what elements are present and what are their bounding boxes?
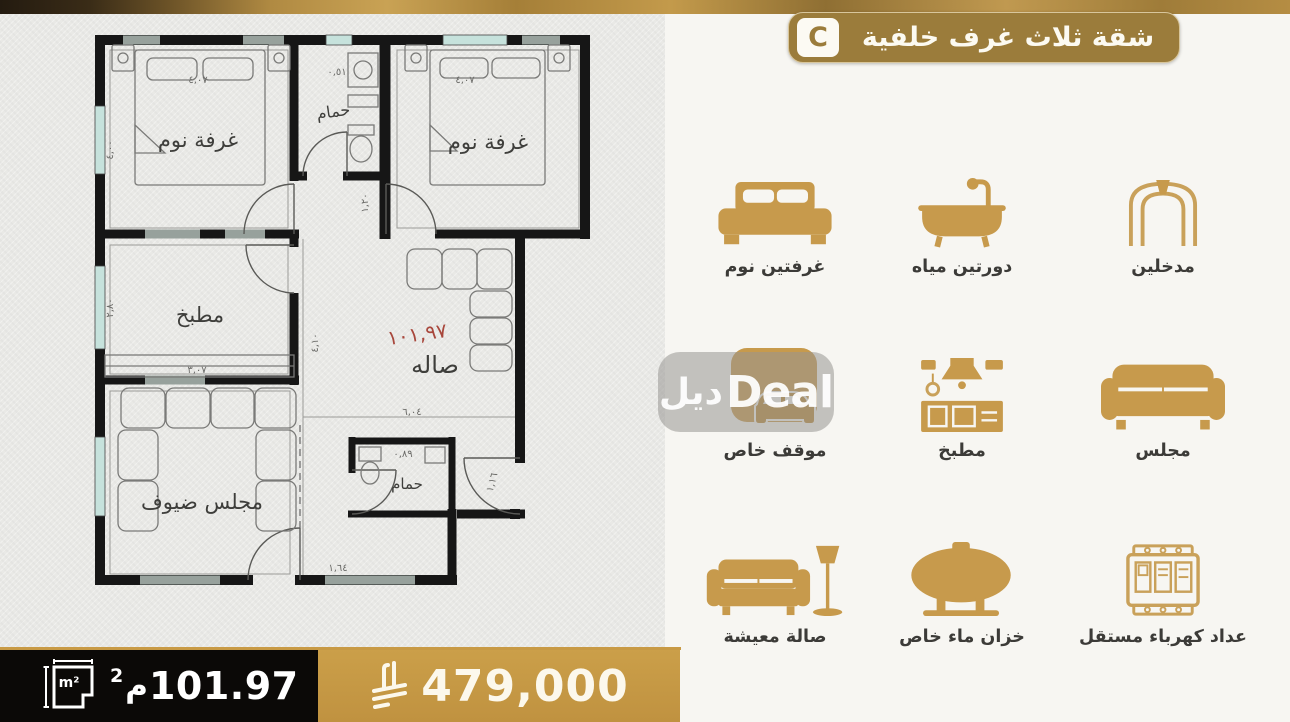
dim-left-top: ٤,٠٠: [105, 140, 116, 159]
price-bar: 479,000: [318, 650, 680, 722]
bathroom2-label: حمام: [391, 475, 423, 493]
feature-kitchen: مطبخ: [862, 352, 1062, 461]
dim-hall-left: ٤,١٠: [310, 333, 321, 352]
feature-label: دورتين مياه: [862, 257, 1062, 277]
sofa-lamp-icon: [706, 542, 844, 618]
dim-hall-bottom: ٦,٠٤: [402, 407, 421, 418]
bathroom1-label: حمام: [315, 100, 351, 124]
feature-label: مدخلين: [1063, 257, 1263, 277]
m2-icon-text: m²: [59, 675, 80, 691]
sofa-icon: [1101, 364, 1225, 432]
bedroom1-label: غرفة نوم: [158, 128, 238, 152]
area-m2-icon: m²: [42, 659, 98, 713]
dim-bed1: ٤,٠٧: [188, 75, 208, 86]
price-value: 479,000: [421, 661, 628, 712]
dim-entry-bottom: ١,٦٤: [328, 563, 347, 574]
feature-label: عداد كهرباء مستقل: [1063, 627, 1263, 647]
feature-bedrooms: غرفتين نوم: [675, 168, 875, 277]
floorplan-area: غرفة نوم غرفة نوم حمام مطبخ صاله مجلس ضي…: [0, 0, 665, 722]
bathtub-icon: [918, 176, 1006, 248]
area-value: 101.97: [149, 664, 299, 708]
dim-entry-right: ١,١٦: [485, 472, 501, 493]
feature-living-room: صالة معيشة: [675, 538, 875, 647]
water-tank-icon: [909, 542, 1015, 618]
feature-label: مجلس: [1063, 441, 1263, 461]
watermark: ديل Deal: [658, 352, 834, 432]
dim-bath2: ٠,٨٩: [393, 449, 412, 460]
area-bar: m² 2 م 101.97: [0, 650, 318, 722]
header-banner: C شقة ثلاث غرف خلفية: [788, 12, 1180, 63]
hall-label: صاله: [411, 351, 459, 379]
area-number-red: ١٠١,٩٧: [386, 318, 449, 350]
flyer: غرفة نوم غرفة نوم حمام مطبخ صاله مجلس ضي…: [0, 0, 1290, 722]
dim-corridor: ١,٢٠: [360, 193, 371, 212]
saudi-riyal-icon: [369, 661, 409, 711]
kitchen-label: مطبخ: [176, 303, 224, 327]
feature-water-tank: خزان ماء خاص: [862, 538, 1062, 647]
meter-icon: [1120, 542, 1206, 618]
area-unit: م: [125, 668, 148, 704]
unit-type-badge: C: [797, 18, 839, 57]
watermark-latin: Deal: [726, 367, 833, 418]
dim-kitchen-bottom: ٣,٠٧: [187, 365, 207, 376]
dim-kitchen-left: ٢,٨٠: [105, 298, 116, 317]
feature-bathrooms: دورتين مياه: [862, 168, 1062, 277]
bedroom2-label: غرفة نوم: [448, 130, 528, 154]
feature-majlis: مجلس: [1063, 352, 1263, 461]
majlis-label: مجلس ضيوف: [141, 490, 263, 514]
floorplan-svg: غرفة نوم غرفة نوم حمام مطبخ صاله مجلس ضي…: [85, 25, 675, 655]
feature-entrances: مدخلين: [1063, 168, 1263, 277]
feature-label: خزان ماء خاص: [862, 627, 1062, 647]
area-superscript: 2: [110, 665, 123, 687]
page-title: شقة ثلاث غرف خلفية: [839, 22, 1171, 53]
kitchen-icon: [921, 358, 1003, 432]
arch-icon: [1125, 178, 1201, 248]
feature-label: مطبخ: [862, 441, 1062, 461]
feature-label: صالة معيشة: [675, 627, 875, 647]
dim-bath1-top: ٠,٥١: [327, 67, 346, 78]
dim-bed2: ٤,٠٧: [455, 75, 475, 86]
bed-icon: [717, 182, 833, 248]
watermark-arabic: ديل: [659, 372, 723, 413]
feature-electric-meter: عداد كهرباء مستقل: [1063, 538, 1263, 647]
feature-label: موقف خاص: [675, 441, 875, 461]
feature-label: غرفتين نوم: [675, 257, 875, 277]
